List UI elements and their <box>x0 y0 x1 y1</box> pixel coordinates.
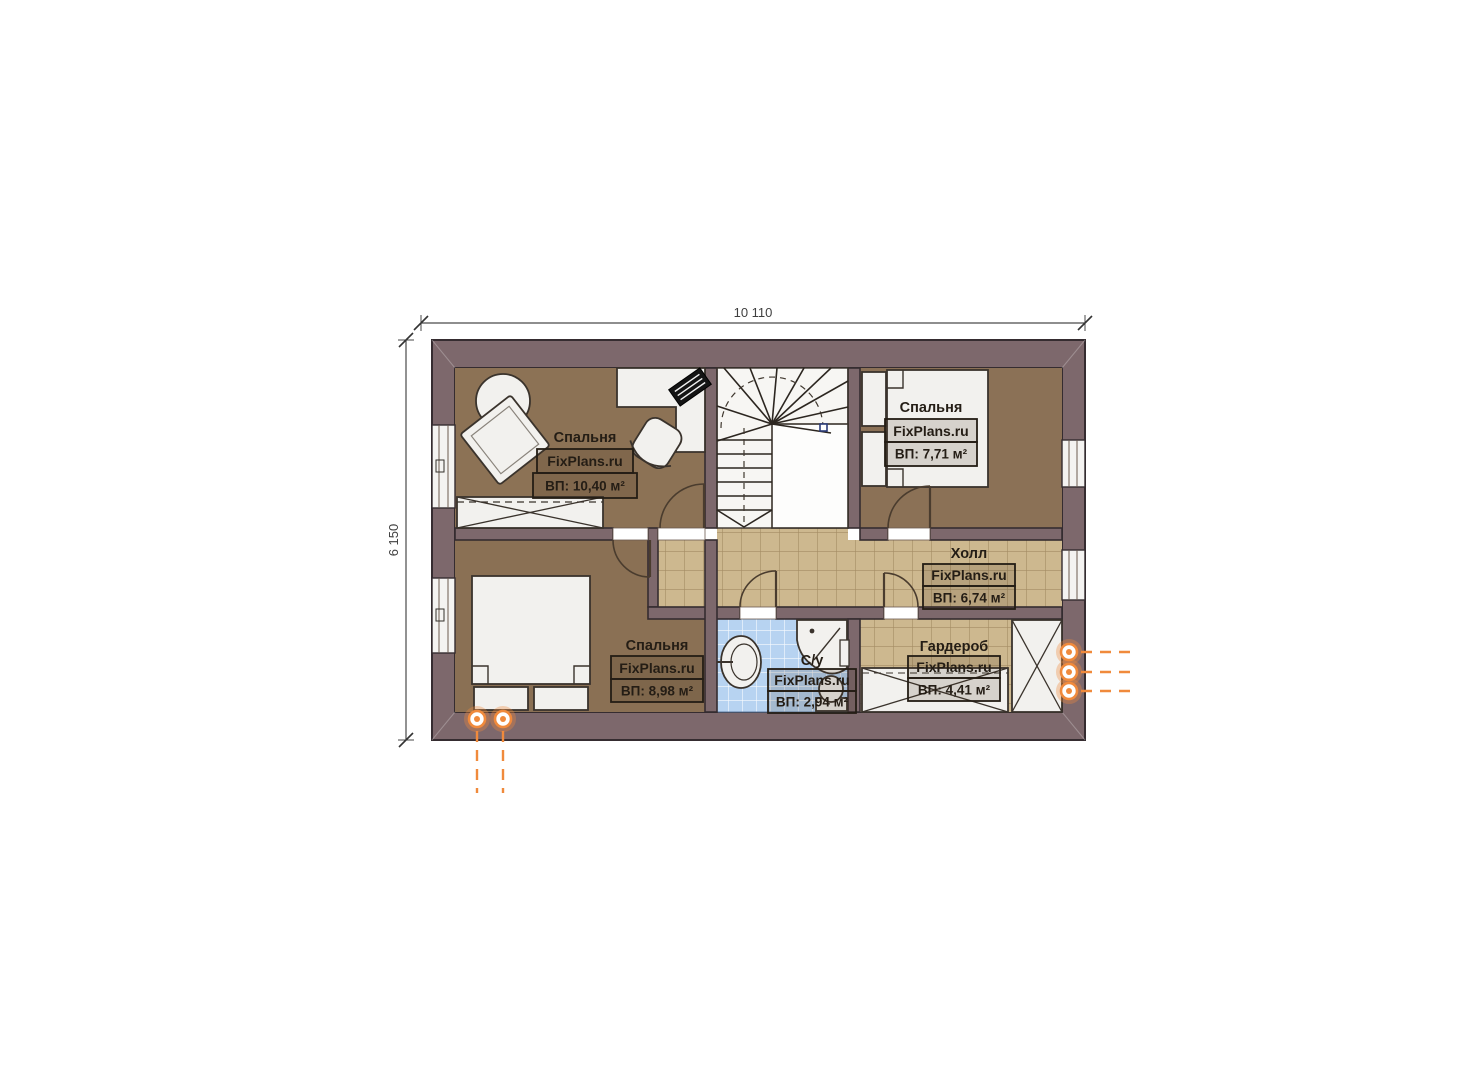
watermark: FixPlans.ru <box>774 672 849 688</box>
flue-right-3 <box>1059 681 1135 701</box>
watermark: FixPlans.ru <box>619 660 694 676</box>
room-name: С/у <box>801 653 824 669</box>
flue-bottom-1 <box>467 709 487 793</box>
watermark: FixPlans.ru <box>916 659 991 675</box>
room-name: Гардероб <box>920 639 989 655</box>
dimension-left: 6 150 <box>386 333 414 747</box>
watermark: FixPlans.ru <box>547 453 622 469</box>
window-right-2 <box>1062 550 1085 600</box>
watermark: FixPlans.ru <box>893 423 968 439</box>
dimension-top: 10 110 <box>414 305 1092 331</box>
room-area: ВП: 7,71 м² <box>895 447 968 462</box>
window-left-2 <box>432 578 455 653</box>
bed <box>472 576 590 684</box>
room-area: ВП: 2,94 м² <box>776 695 849 710</box>
room-name: Спальня <box>900 400 963 416</box>
room-area: ВП: 10,40 м² <box>545 479 625 494</box>
nightstand <box>534 687 588 710</box>
flue-right-1 <box>1059 642 1135 662</box>
floor-plan-canvas: 10 110 6 150 <box>0 0 1473 1080</box>
wardrobe-cabinet-right <box>1012 620 1062 712</box>
flue-bottom-2 <box>493 709 513 793</box>
dimension-height-label: 6 150 <box>386 524 401 557</box>
watermark: FixPlans.ru <box>931 567 1006 583</box>
wall-hall-south-2 <box>776 607 884 619</box>
window-right-1 <box>1062 440 1085 487</box>
window-left-1 <box>432 425 455 508</box>
nightstand <box>862 372 886 426</box>
label-wardrobe: Гардероб FixPlans.ru ВП: 4,41 м² <box>908 639 1000 701</box>
wardrobe-cabinet <box>457 497 603 528</box>
wall-stair-right <box>848 368 860 528</box>
nightstand <box>862 432 886 486</box>
room-area: ВП: 4,41 м² <box>918 683 991 698</box>
room-area: ВП: 6,74 м² <box>933 591 1006 606</box>
room-name: Холл <box>951 546 987 562</box>
stair-marker <box>820 424 827 431</box>
room-name: Спальня <box>554 430 617 446</box>
wall-stair-left <box>705 368 717 528</box>
wall-hall-south-1 <box>648 607 740 619</box>
stair-landing <box>772 424 848 528</box>
room-area: ВП: 8,98 м² <box>621 684 694 699</box>
room-name: Спальня <box>626 638 689 654</box>
wall-bath-west <box>705 540 717 712</box>
dimension-width-label: 10 110 <box>734 305 773 320</box>
wall-bedrooms-divider <box>455 528 613 540</box>
page: 10 110 6 150 <box>0 0 1473 1080</box>
